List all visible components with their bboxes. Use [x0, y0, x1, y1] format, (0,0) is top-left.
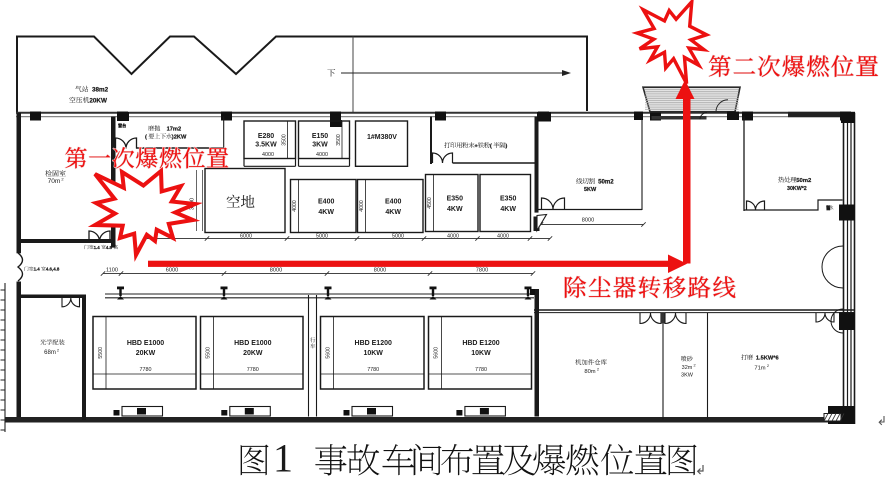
- svg-text:5000: 5000: [316, 234, 328, 240]
- svg-text:6000: 6000: [240, 234, 252, 240]
- svg-text:7800: 7800: [476, 268, 488, 274]
- svg-text:80m: 80m: [584, 369, 595, 375]
- svg-text:4KW: 4KW: [318, 209, 334, 216]
- svg-text:70m: 70m: [48, 178, 61, 185]
- svg-text:4000: 4000: [262, 152, 274, 158]
- svg-text:HBD E1200: HBD E1200: [462, 340, 499, 347]
- svg-text:1.4: 1.4: [94, 245, 101, 250]
- svg-text:1#M380V: 1#M380V: [367, 134, 397, 141]
- svg-text:1.4: 1.4: [34, 267, 41, 272]
- svg-text:5600: 5600: [434, 347, 440, 359]
- svg-text:50m2: 50m2: [598, 179, 614, 186]
- svg-text:4KW: 4KW: [500, 206, 516, 213]
- svg-text:5KW: 5KW: [584, 187, 597, 193]
- svg-text:5500: 5500: [206, 347, 212, 359]
- svg-text:5000: 5000: [392, 234, 404, 240]
- svg-text:E150: E150: [312, 133, 328, 140]
- svg-text:38m2: 38m2: [92, 87, 109, 94]
- svg-text:10KW: 10KW: [363, 350, 383, 357]
- svg-text:3500: 3500: [282, 134, 288, 146]
- svg-text:1.5KW*6: 1.5KW*6: [756, 356, 779, 362]
- svg-text:E350: E350: [447, 196, 463, 203]
- svg-text:): ): [505, 144, 507, 150]
- svg-text:5500: 5500: [98, 347, 104, 359]
- svg-text:1100: 1100: [106, 268, 118, 274]
- svg-text:4KW: 4KW: [385, 209, 401, 216]
- svg-text:50m2: 50m2: [796, 178, 812, 184]
- svg-text:8000: 8000: [582, 218, 594, 224]
- svg-text:6000: 6000: [166, 268, 178, 274]
- svg-text:7780: 7780: [367, 367, 379, 373]
- svg-text:)2KW: )2KW: [172, 135, 187, 141]
- svg-text:4000: 4000: [292, 200, 298, 212]
- svg-text:1: 1: [273, 436, 293, 481]
- svg-text:4KW: 4KW: [447, 206, 463, 213]
- svg-text:4.8: 4.8: [106, 245, 113, 250]
- svg-text:HBD E1200: HBD E1200: [355, 340, 392, 347]
- svg-text:(: (: [145, 135, 147, 141]
- svg-text:10KW: 10KW: [471, 350, 491, 357]
- svg-text:8000: 8000: [270, 268, 282, 274]
- svg-text:4000: 4000: [497, 234, 509, 240]
- svg-text:3.5KW: 3.5KW: [255, 142, 277, 149]
- svg-text:32m: 32m: [682, 365, 693, 371]
- svg-text:+: +: [474, 144, 478, 150]
- svg-text:2: 2: [693, 364, 695, 368]
- svg-text:7780: 7780: [475, 367, 487, 373]
- svg-text:71m: 71m: [754, 366, 765, 372]
- svg-text:E350: E350: [500, 196, 516, 203]
- svg-text:E400: E400: [318, 199, 334, 206]
- svg-text:E400: E400: [385, 199, 401, 206]
- svg-text:窗台: 窗台: [118, 122, 126, 128]
- svg-text:8000: 8000: [374, 268, 386, 274]
- svg-text:30KW*2: 30KW*2: [787, 186, 807, 192]
- svg-text:3KW: 3KW: [312, 142, 328, 149]
- svg-text:4000: 4000: [447, 234, 459, 240]
- svg-text:68m: 68m: [44, 350, 56, 356]
- svg-text:4.6,4.8: 4.6,4.8: [46, 267, 60, 272]
- svg-text:5600: 5600: [326, 347, 332, 359]
- svg-text:HBD E1000: HBD E1000: [127, 340, 164, 347]
- svg-text:HBD E1000: HBD E1000: [234, 340, 271, 347]
- svg-text:3500: 3500: [336, 134, 342, 146]
- svg-text:20KW: 20KW: [136, 350, 156, 357]
- svg-text:(: (: [490, 144, 492, 150]
- svg-text:4000: 4000: [359, 200, 365, 212]
- svg-text:E280: E280: [258, 133, 274, 140]
- svg-text:7780: 7780: [247, 367, 259, 373]
- svg-text:20KW: 20KW: [89, 98, 107, 105]
- svg-text:20KW: 20KW: [243, 350, 263, 357]
- svg-text:蓄: 蓄: [826, 205, 831, 212]
- svg-text:4000: 4000: [316, 152, 328, 158]
- svg-text:3KW: 3KW: [681, 373, 694, 379]
- svg-text:7780: 7780: [140, 367, 152, 373]
- svg-text:17m2: 17m2: [167, 127, 182, 133]
- svg-text:4500: 4500: [427, 197, 433, 209]
